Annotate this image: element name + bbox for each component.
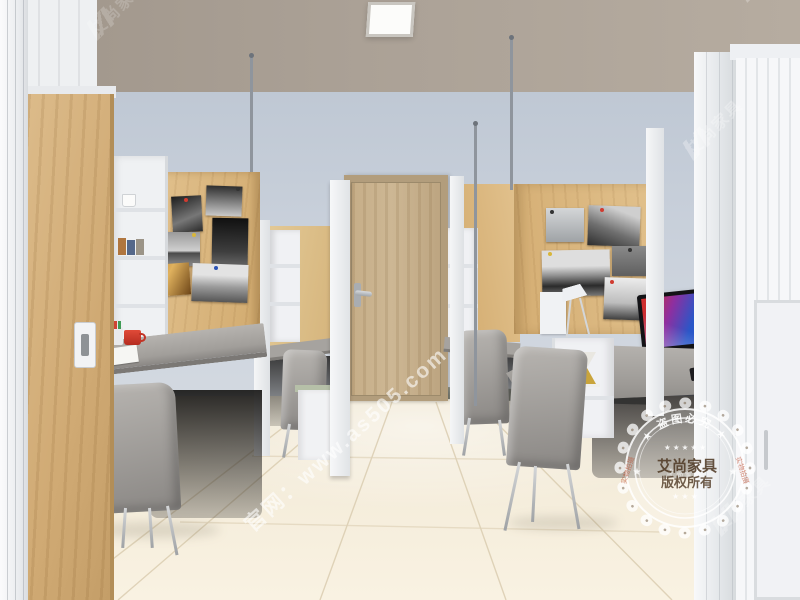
photo-pin	[548, 252, 552, 256]
photo-pin	[184, 198, 188, 202]
seal-stars-top: ★ ★ ★ ★ ★	[664, 443, 706, 452]
photo	[587, 205, 640, 247]
left-vertical-pole	[250, 56, 253, 190]
shelf-divider	[110, 304, 165, 308]
seal-brand-text: 艾尚家具	[657, 457, 717, 475]
far-right-chair	[458, 329, 509, 425]
right-chair	[506, 346, 588, 471]
book	[127, 240, 135, 255]
cup	[122, 194, 136, 207]
photo	[191, 263, 248, 303]
photo-pin	[628, 248, 632, 252]
left-frame-strip	[0, 0, 28, 600]
shelf-divider	[110, 256, 165, 260]
far-right-bed-post	[450, 176, 464, 444]
photo-pin	[236, 187, 240, 191]
pole-tip	[473, 121, 478, 126]
photo-pin	[610, 280, 614, 284]
right-vertical-pole	[510, 38, 513, 190]
photo-pin	[192, 233, 196, 237]
floor-shadow	[96, 522, 220, 538]
dorm-room-render: 艾尚家具 艾尚家具 艾尚家具 艾尚家具 官网：www.as505.com ★ 盗…	[0, 0, 800, 600]
pole-tip	[249, 53, 254, 58]
book	[118, 238, 126, 255]
ceiling-light	[366, 2, 415, 37]
pole-tip	[509, 35, 514, 40]
shelf-divider	[270, 302, 300, 306]
right-wardrobe-handle	[764, 430, 768, 470]
photo	[212, 218, 249, 267]
far-left-shelf-column	[270, 230, 300, 342]
left-shelf-column	[110, 156, 168, 346]
seal-stars-bottom: ★ ★ ★	[672, 492, 698, 501]
copyright-seal-watermark: ★ 盗图必究 ★ 艾尚家具 ★ ★ ★ ★ ★ 艾尚家具 版权所有 ★ ★ ★ …	[610, 393, 760, 543]
floor-shadow	[508, 516, 618, 530]
photo-pin	[600, 208, 604, 212]
pen	[118, 321, 121, 329]
right-vertical-pole	[474, 124, 477, 406]
seal-star-left: ★	[633, 467, 642, 478]
photo-pin	[550, 210, 554, 214]
seal-star-right: ★	[729, 467, 738, 478]
seal-copyright-text: 版权所有	[661, 475, 713, 490]
shelf-divider	[270, 264, 300, 268]
right-wardrobe-panel	[754, 300, 800, 600]
photo-pin	[214, 266, 218, 270]
right-mid-bed-post	[646, 128, 664, 416]
pen	[114, 321, 117, 329]
book	[136, 239, 144, 255]
left-wardrobe-door	[28, 94, 114, 600]
left-wardrobe-handle-slot	[81, 334, 89, 356]
shelf-divider	[110, 208, 165, 212]
right-wall-box	[540, 292, 566, 334]
